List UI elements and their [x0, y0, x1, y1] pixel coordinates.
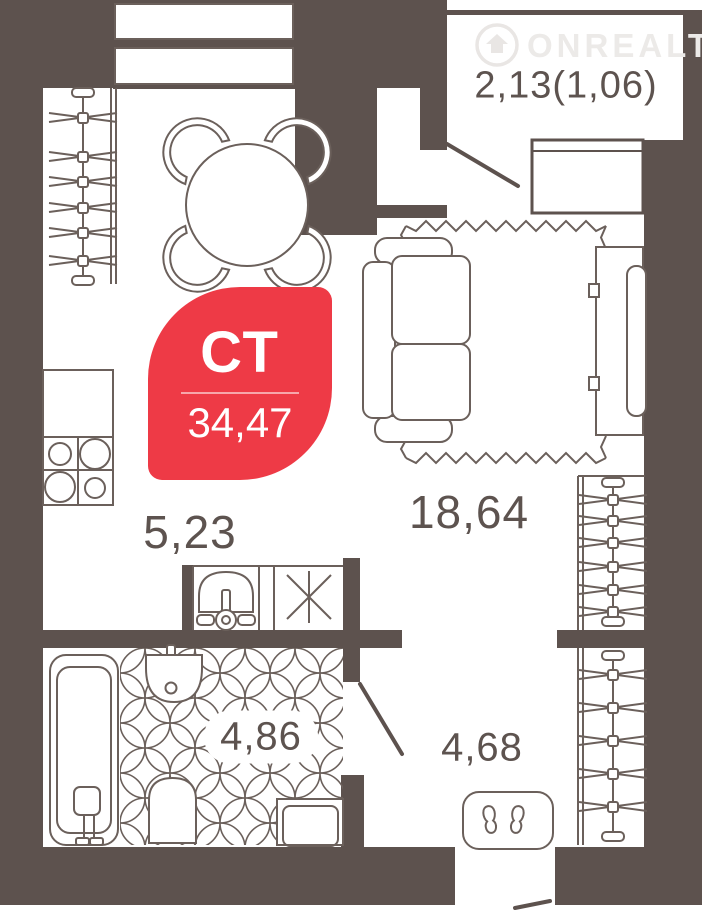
entrance-door-leaf-icon [515, 901, 550, 908]
room-area-label-balcony: 2,13(1,06) [474, 65, 657, 108]
house-icon [486, 34, 508, 53]
apartment-type-label: СТ [200, 324, 280, 382]
sofa-icon [363, 238, 470, 442]
closet-left-hanger-rail-icon [49, 88, 117, 285]
room-area-label-bathroom: 4,86 [204, 711, 318, 764]
watermark: ONREALT [477, 25, 702, 65]
floorplan-artwork: ONREALT [0, 0, 702, 910]
bathtub-icon [50, 655, 118, 845]
room-area-label-living: 18,64 [409, 485, 529, 539]
balcony-door-leaf-icon [447, 144, 518, 186]
tv-icon [627, 266, 646, 416]
apartment-type-badge: СТ 34,47 [148, 287, 332, 480]
doormat-icon [463, 792, 553, 849]
kitchen-cabinet-icon [43, 370, 113, 437]
asterisk-symbol [287, 571, 331, 623]
badge-divider [181, 392, 299, 394]
room-area-label-kitchen: 5,23 [143, 505, 237, 559]
wardrobe-top-icon [115, 4, 293, 84]
stove-icon [43, 437, 113, 505]
washing-machine-icon [277, 799, 343, 846]
wardrobe-right-upper-icon [578, 476, 647, 630]
wardrobe-right-lower-icon [578, 648, 647, 845]
dining-table-icon [186, 144, 308, 266]
total-area-label: 34,47 [187, 402, 292, 444]
dining-set-icon [149, 104, 345, 306]
floor-plan: ONREALT [0, 0, 702, 910]
bathroom-door-leaf-icon [360, 684, 402, 754]
sink-vanity-icon [197, 572, 255, 630]
watermark-text: ONREALT [527, 27, 702, 64]
tv-unit-icon [589, 247, 646, 435]
balcony-window-icon [532, 140, 643, 213]
toilet-icon [149, 778, 196, 843]
room-area-label-hallway: 4,68 [441, 726, 523, 771]
